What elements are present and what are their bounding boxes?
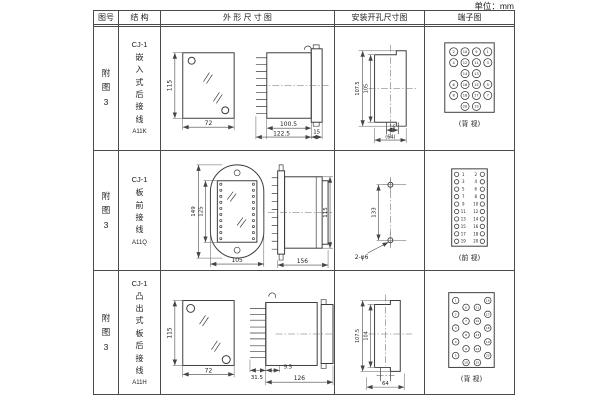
svg-text:9: 9 <box>475 50 477 54</box>
structure-name: 板前接线 <box>134 187 145 237</box>
mounting-diagram-row2: 133 2-φ6 <box>335 151 425 271</box>
spec-table: 图号 结 构 外 形 尺 寸 图 安装开孔尺寸图 端子图 附图3 CJ-1 嵌入… <box>93 10 515 395</box>
svg-text:5: 5 <box>455 354 457 358</box>
terminal-drawing-r3: 1234567891011121314151617181920 (背 视) <box>425 271 514 394</box>
svg-text:7: 7 <box>462 194 465 199</box>
svg-text:13: 13 <box>476 333 480 337</box>
svg-text:4: 4 <box>455 340 457 344</box>
dim-label: 126 <box>294 376 306 382</box>
svg-text:11: 11 <box>476 305 480 309</box>
dim-label: 115 <box>166 80 173 92</box>
svg-text:19: 19 <box>474 105 479 109</box>
header-mounting: 安装开孔尺寸图 <box>335 11 425 25</box>
svg-text:4: 4 <box>474 179 477 184</box>
svg-text:19: 19 <box>486 340 490 344</box>
fig-cell-row1: 附图3 <box>94 25 119 151</box>
svg-text:3: 3 <box>455 326 457 330</box>
svg-text:10: 10 <box>463 50 468 54</box>
dim-label: 105 <box>364 84 370 93</box>
dim-label: 64 <box>382 381 389 387</box>
svg-text:12: 12 <box>476 319 480 323</box>
svg-text:14: 14 <box>476 347 480 351</box>
outline-diagram-row3: 115 72 31.5 9.5 126 <box>161 271 335 394</box>
svg-text:13: 13 <box>461 216 467 221</box>
structure-cell-row3: CJ-1 凸出式板后接线 A11H <box>119 271 161 394</box>
fig-number: 附图3 <box>100 66 112 109</box>
mounting-drawing-r2: 133 2-φ6 <box>335 151 424 270</box>
dim-label: 100.5 <box>280 121 297 128</box>
dim-label: 16 <box>389 125 395 131</box>
dim-label: 122.5 <box>273 131 290 138</box>
svg-text:1: 1 <box>455 299 457 303</box>
dim-label: 72 <box>205 368 213 374</box>
svg-text:7: 7 <box>487 94 489 98</box>
svg-text:1: 1 <box>487 50 489 54</box>
svg-text:7: 7 <box>465 319 467 323</box>
outline-drawing-r3: 115 72 31.5 9.5 126 <box>161 271 334 394</box>
svg-text:8: 8 <box>474 194 477 199</box>
svg-text:12: 12 <box>463 61 468 65</box>
svg-text:5: 5 <box>462 187 465 192</box>
type-code: A11K <box>132 129 146 135</box>
svg-text:15: 15 <box>476 361 480 365</box>
mounting-diagram-row1: 107.5 105 16 (64) <box>335 25 425 151</box>
svg-text:14: 14 <box>463 72 468 76</box>
terminal-diagram-row3: 1234567891011121314151617181920 (背 视) <box>425 271 514 394</box>
dim-label: 105 <box>231 257 243 264</box>
svg-text:6: 6 <box>465 305 467 309</box>
mounting-drawing-r3: 107.5 104 64 <box>335 271 424 394</box>
type-code: A11Q <box>132 240 147 246</box>
svg-text:17: 17 <box>461 231 467 236</box>
dim-label: 72 <box>205 120 213 127</box>
dim-label: 156 <box>297 258 309 265</box>
svg-text:18: 18 <box>473 231 479 236</box>
svg-text:15: 15 <box>474 83 479 87</box>
view-caption: (背 视) <box>461 374 483 383</box>
svg-text:18: 18 <box>463 94 468 98</box>
terminal-dot-columns <box>220 183 255 240</box>
svg-text:2: 2 <box>474 172 477 177</box>
svg-text:3: 3 <box>487 61 489 65</box>
svg-text:10: 10 <box>473 202 479 207</box>
svg-text:11: 11 <box>474 61 479 65</box>
terminal-pins: 2109141211314136161558181772019 <box>450 48 492 111</box>
view-caption: (前 视) <box>459 253 481 262</box>
terminal-drawing-r2: 1234567891011121314151617181920 (前 视) <box>425 151 514 270</box>
terminal-pins: 1234567891011121314151617181920 <box>452 297 491 365</box>
type-code: A11H <box>132 380 147 386</box>
page: 单位：mm 图号 结 构 外 形 尺 寸 图 安装开孔尺寸图 端子图 附图3 C… <box>0 0 600 400</box>
fig-number: 附图3 <box>100 311 112 354</box>
model-label: CJ-1 <box>132 279 148 288</box>
dim-label: 31.5 <box>251 375 263 381</box>
svg-text:20: 20 <box>486 354 490 358</box>
svg-text:12: 12 <box>473 209 479 214</box>
terminal-diagram-row1: 2109141211314136161558181772019 (背 视) <box>425 25 514 151</box>
dim-label: 115 <box>167 327 173 338</box>
dim-label: 15 <box>313 130 320 136</box>
svg-text:19: 19 <box>461 239 467 244</box>
svg-text:14: 14 <box>473 216 479 221</box>
svg-text:8: 8 <box>465 333 467 337</box>
terminal-drawing-r1: 2109141211314136161558181772019 (背 视) <box>425 25 514 150</box>
svg-text:16: 16 <box>473 224 479 229</box>
dim-label: 107.5 <box>355 81 361 95</box>
svg-text:9: 9 <box>465 347 467 351</box>
dim-label: 149 <box>191 206 197 217</box>
svg-text:16: 16 <box>463 83 468 87</box>
structure-cell-row1: CJ-1 嵌入式后接线 A11K <box>119 25 161 151</box>
svg-text:1: 1 <box>462 172 465 177</box>
svg-text:11: 11 <box>461 209 467 214</box>
svg-text:20: 20 <box>463 105 468 109</box>
svg-text:17: 17 <box>486 312 490 316</box>
svg-text:2: 2 <box>453 50 455 54</box>
structure-name: 凸出式板后接线 <box>134 291 145 378</box>
dim-label: 115 <box>323 207 329 217</box>
svg-text:3: 3 <box>462 179 465 184</box>
svg-text:10: 10 <box>464 361 468 365</box>
dim-label: (64) <box>385 135 395 141</box>
header-fig: 图号 <box>94 11 119 25</box>
dim-label: 125 <box>199 206 205 216</box>
svg-text:17: 17 <box>474 94 479 98</box>
mounting-diagram-row3: 107.5 104 64 <box>335 271 425 394</box>
outline-diagram-row1: 115 72 100.5 122.5 15 <box>161 25 335 151</box>
terminal-pins: 1234567891011121314151617181920 <box>454 172 484 244</box>
svg-text:16: 16 <box>486 299 490 303</box>
svg-text:6: 6 <box>474 187 477 192</box>
header-structure: 结 构 <box>119 11 161 25</box>
header-terminal: 端子图 <box>425 11 514 25</box>
outline-diagram-row2: 149 125 105 115 156 <box>161 151 335 271</box>
structure-cell-row2: CJ-1 板前接线 A11Q <box>119 151 161 271</box>
mounting-drawing-r1: 107.5 105 16 (64) <box>335 25 424 150</box>
fig-cell-row2: 附图3 <box>94 151 119 271</box>
dim-label: 133 <box>372 207 378 218</box>
fig-number: 附图3 <box>100 189 112 232</box>
dim-label: 104 <box>364 331 370 340</box>
svg-text:5: 5 <box>487 83 489 87</box>
model-label: CJ-1 <box>132 40 148 49</box>
outline-drawing-r2: 149 125 105 115 156 <box>161 151 334 270</box>
svg-text:15: 15 <box>461 224 467 229</box>
svg-text:13: 13 <box>474 72 479 76</box>
view-caption: (背 视) <box>459 119 481 128</box>
dim-label: 9.5 <box>284 364 293 370</box>
svg-text:2: 2 <box>455 312 457 316</box>
hole-spec-label: 2-φ6 <box>355 254 369 261</box>
dim-label: 107.5 <box>355 329 361 343</box>
fig-cell-row3: 附图3 <box>94 271 119 394</box>
svg-text:18: 18 <box>486 326 490 330</box>
svg-text:20: 20 <box>473 239 479 244</box>
model-label: CJ-1 <box>132 175 148 184</box>
outline-drawing-r1: 115 72 100.5 122.5 15 <box>161 25 334 150</box>
structure-name: 嵌入式后接线 <box>134 52 145 126</box>
terminal-diagram-row2: 1234567891011121314151617181920 (前 视) <box>425 151 514 271</box>
header-outline: 外 形 尺 寸 图 <box>161 11 335 25</box>
svg-text:9: 9 <box>462 202 465 207</box>
